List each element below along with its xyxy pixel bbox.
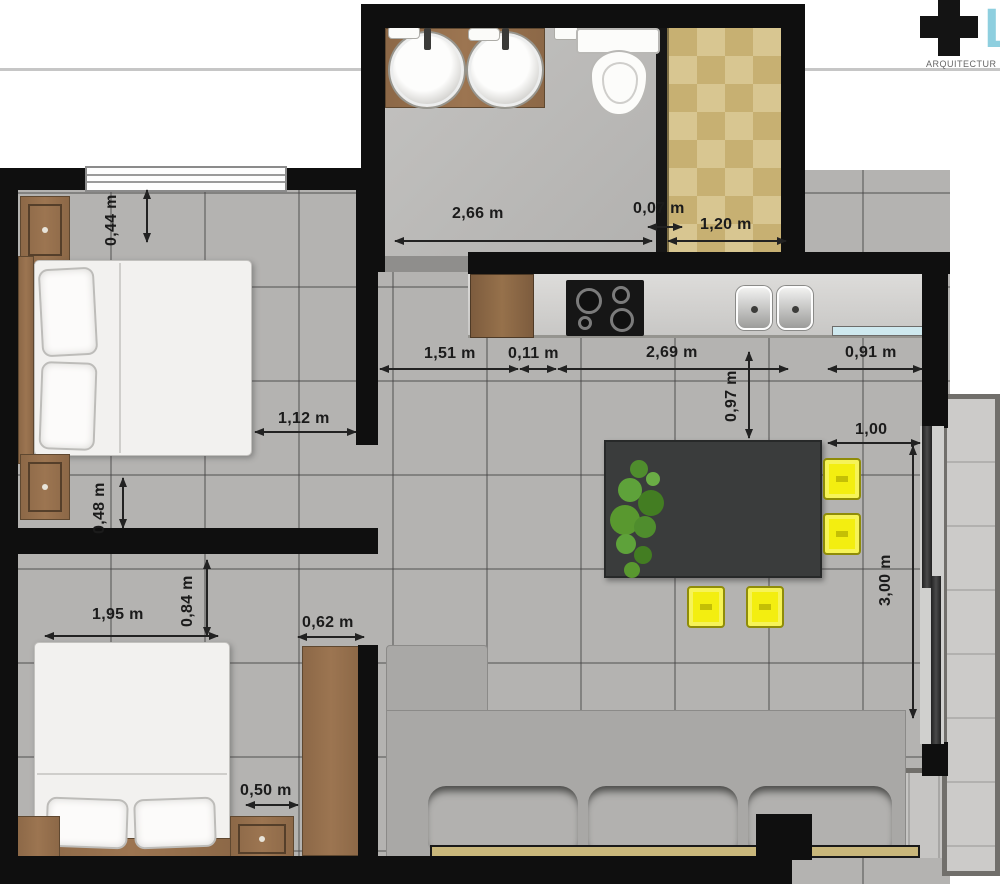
burner-icon — [578, 316, 592, 330]
leaf-icon — [624, 562, 640, 578]
dim-bed1-side: 1,12 m — [278, 410, 330, 428]
dim-line — [380, 368, 518, 370]
burner-icon — [612, 286, 630, 304]
dim-bed2-side: 0,84 m — [180, 563, 196, 627]
duvet-fold — [119, 263, 121, 453]
wall-corner-block — [756, 814, 812, 860]
kitchen-sink — [734, 284, 816, 332]
wall-bathroom-top — [365, 4, 805, 28]
window-glazing — [87, 181, 285, 183]
dim-counter-left: 1,51 m — [424, 345, 476, 363]
door-panel — [931, 576, 941, 744]
dim-line — [912, 446, 914, 718]
dim-line — [828, 368, 922, 370]
bathroom-door-threshold — [385, 256, 468, 272]
wall-bedroom-divider — [0, 528, 378, 554]
pillow — [133, 797, 217, 850]
pillow — [38, 267, 99, 358]
dim-line — [246, 804, 298, 806]
leaf-icon — [616, 534, 636, 554]
wall-bedroom2-right — [358, 645, 378, 858]
dim-line — [520, 368, 556, 370]
dim-counter-gap: 0,11 m — [508, 345, 559, 363]
dim-line — [828, 442, 920, 444]
header-rule-left — [0, 68, 361, 71]
leaf-icon — [630, 460, 648, 478]
sliding-glass-door — [920, 426, 944, 744]
logo-subtitle: ARQUITECTUR — [926, 59, 1000, 69]
dim-counter-depth: 0,97 m — [724, 356, 740, 422]
wall-left — [0, 168, 18, 884]
leaf-icon — [634, 516, 656, 538]
leaf-icon — [634, 546, 652, 564]
pillow — [38, 361, 97, 451]
sofa-cushion — [428, 786, 578, 852]
dim-line — [748, 352, 750, 438]
dim-line — [45, 635, 218, 637]
kitchen-cabinet — [470, 274, 534, 338]
dim-line — [255, 431, 356, 433]
cooktop — [566, 280, 644, 336]
wall-bottom — [0, 856, 792, 884]
toilet-paper-holder — [554, 26, 578, 40]
dining-chair — [687, 586, 725, 628]
drawer — [28, 204, 62, 256]
dim-bed2-clearance: 0,50 m — [240, 782, 292, 800]
wall-bedroom1-right — [356, 168, 378, 445]
burner-icon — [576, 288, 602, 314]
window-glazing — [87, 174, 285, 176]
leaf-icon — [638, 490, 664, 516]
dim-bath-width: 2,66 m — [452, 205, 504, 223]
dim-living-length: 3,00 m — [878, 540, 894, 606]
duvet-fold — [37, 773, 227, 775]
bathroom-sink — [390, 33, 464, 107]
wall-kitchen-top — [468, 252, 950, 274]
sofa-cushion — [588, 786, 738, 852]
dim-line — [558, 368, 788, 370]
kitchen-window — [832, 326, 924, 336]
shower-partition-wall — [656, 28, 667, 252]
plant — [600, 450, 680, 580]
dim-line — [146, 190, 148, 242]
dining-chair — [823, 458, 861, 500]
logo-plus-icon — [920, 16, 978, 38]
floor-plan: L ARQUITECTUR — [0, 0, 1000, 884]
bathroom-sink — [468, 33, 542, 107]
sink-bowl — [777, 286, 813, 330]
dim-line — [122, 478, 124, 528]
wall-right-top — [922, 252, 948, 428]
nightstand — [20, 454, 70, 520]
dining-chair — [823, 513, 861, 555]
wall-bathroom-right — [781, 4, 805, 256]
burner-icon — [610, 308, 634, 332]
nightstand — [20, 196, 70, 264]
headboard — [18, 256, 34, 464]
soap-dish — [468, 28, 500, 41]
dining-chair — [746, 586, 784, 628]
dim-line — [298, 636, 364, 638]
dim-bed1-foot: 0,48 m — [92, 476, 108, 534]
dim-table-offset: 1,00 — [855, 421, 887, 439]
dim-nightstand-top: 0,44 m — [104, 184, 120, 246]
dim-line — [206, 560, 208, 636]
dim-line — [648, 226, 682, 228]
wall-right-bottom — [922, 742, 948, 776]
drawer — [238, 824, 286, 854]
door-panel — [922, 426, 932, 588]
leaf-icon — [646, 472, 660, 486]
dim-wardrobe-width: 0,62 m — [302, 614, 354, 632]
dim-bed2-width: 1,95 m — [92, 606, 144, 624]
logo-letter: L — [984, 0, 1000, 56]
wardrobe — [302, 646, 360, 856]
sink-bowl — [736, 286, 772, 330]
dim-counter-length: 2,69 m — [646, 344, 698, 362]
drawer — [28, 462, 62, 512]
dim-line — [395, 240, 652, 242]
dim-bath-partition: 0,07 m — [633, 200, 685, 218]
dim-counter-right: 0,91 m — [845, 344, 897, 362]
dim-line — [668, 240, 786, 242]
balcony-right — [942, 394, 1000, 876]
dim-shower-width: 1,20 m — [700, 216, 752, 234]
